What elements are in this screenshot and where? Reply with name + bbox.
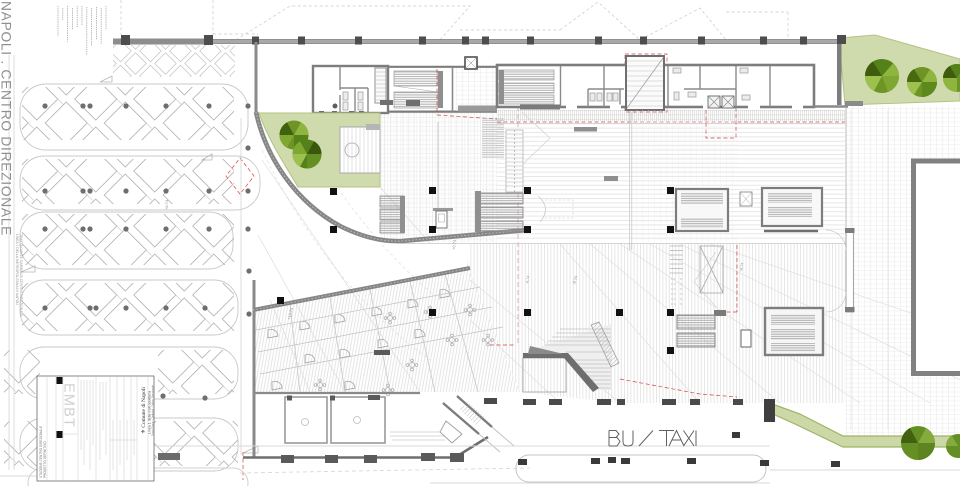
svg-text:EMBT: EMBT	[61, 383, 77, 428]
svg-text:+0.74: +0.74	[451, 239, 457, 250]
svg-text:Tratta Dante - Garibaldi - Cen: Tratta Dante - Garibaldi - Centro Direzi…	[151, 385, 155, 436]
svg-text:+8.74: +8.74	[164, 199, 169, 210]
svg-text:⚜ Comune di Napoli: ⚜ Comune di Napoli	[140, 387, 147, 434]
svg-text:PROGETTO DEFINITIVO: PROGETTO DEFINITIVO	[43, 441, 47, 478]
svg-text:TRATTA DANTE GARIBALDI CENTRO: TRATTA DANTE GARIBALDI CENTRO DIREZIONAL…	[19, 234, 23, 318]
svg-text:NAPOLI . CENTRO DIREZIONALE: NAPOLI . CENTRO DIREZIONALE	[0, 1, 14, 236]
svg-text:LINEA 1 DELLA METROPOLITANA DI: LINEA 1 DELLA METROPOLITANA DI NAPOLI	[15, 234, 19, 305]
